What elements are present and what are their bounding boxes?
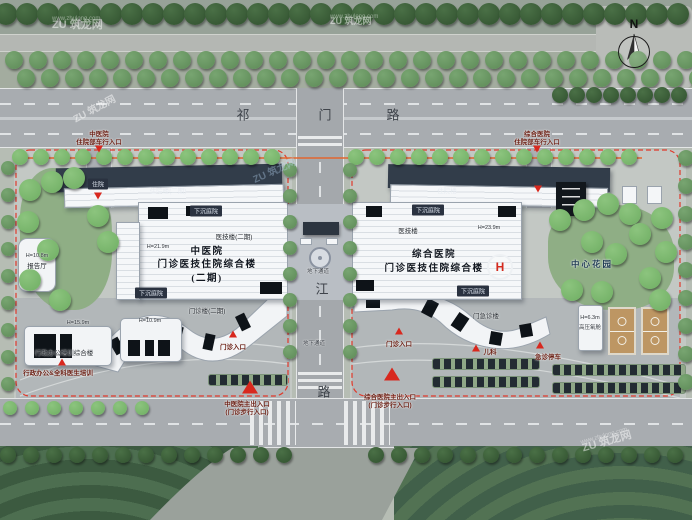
outpatient2-height: H=10.9m xyxy=(139,318,161,324)
right-medtech-label: 医技楼 xyxy=(398,225,418,235)
right-sunken-courtyard-bottom: 下沉庭院 xyxy=(457,286,489,297)
right-outpatient-wing-label: 门急诊楼 xyxy=(473,310,499,320)
road-qimen-char-2: 门 xyxy=(318,105,331,124)
road-qimen-char-1: 祁 xyxy=(236,105,249,124)
right-medtech-height: H=23.9m xyxy=(478,225,500,231)
left-hospital-title-line1: 中医院 xyxy=(190,243,223,257)
admin-building-label: 行政办公培训综合楼 xyxy=(35,347,94,357)
left-inpatient-chip: 住院 xyxy=(88,179,108,190)
right-hospital-title-line1: 综合医院 xyxy=(412,246,456,260)
right-sunken-courtyard-top: 下沉庭院 xyxy=(412,205,444,216)
underpass-label-top: 地下通道 xyxy=(307,267,329,275)
pediatrics-label: 儿科 xyxy=(484,346,497,356)
road-vert-char-1: 江 xyxy=(315,279,328,298)
right-main-entrance-line2: (门诊步行入口) xyxy=(368,399,411,409)
left-sunken-courtyard-bottom: 下沉庭院 xyxy=(135,288,167,299)
report-hall-height: H=10.8m xyxy=(26,253,48,259)
hospital-master-plan: H 祁门路江路地下通道地下通道中医院住院部车行入口综合医院住院部车行入口住院住院… xyxy=(0,0,692,520)
left-medtech-label: 医技楼(二期) xyxy=(216,231,253,241)
left-main-entrance-line2: (门诊步行入口) xyxy=(225,406,268,416)
right-inpatient-drive-line2: 住院部车行入口 xyxy=(514,136,560,146)
oxygen-chamber-label: 高压氧舱 xyxy=(579,323,601,331)
left-outpatient-entrance: 门诊入口 xyxy=(220,341,246,351)
road-qimen-char-3: 路 xyxy=(386,105,399,124)
north-arrow-letter: N xyxy=(630,17,639,31)
road-vert-char-2: 路 xyxy=(317,382,330,401)
report-hall-label: 报告厅 xyxy=(27,260,47,270)
right-inpatient-wing-label: 住院楼 xyxy=(437,185,457,195)
north-arrow-icon xyxy=(618,36,650,68)
left-sunken-courtyard-top: 下沉庭院 xyxy=(190,206,222,217)
underpass-label-bottom: 地下通道 xyxy=(303,339,325,347)
left-hospital-title-line2: 门诊医技住院综合楼 xyxy=(157,256,256,270)
admin-building-height: H=15.9m xyxy=(67,320,89,326)
emergency-parking-label: 急诊停车 xyxy=(535,351,561,361)
left-outpatient-wing-label: 门诊楼(二期) xyxy=(189,305,226,315)
oxygen-chamber-height: H=6.3m xyxy=(580,315,599,321)
admin-building-caption: 行政办公&全科医生培训 xyxy=(23,367,93,377)
right-hospital-title-line2: 门诊医技住院综合楼 xyxy=(384,260,483,274)
right-outpatient-entrance: 门诊入口 xyxy=(386,338,412,348)
left-inpatient-wing-label: 住院楼(二期) xyxy=(150,185,187,195)
central-garden-label: 中心花园 xyxy=(571,258,613,270)
left-medtech-height: H=21.9m xyxy=(147,244,169,250)
left-hospital-title-line3: (二期) xyxy=(191,270,222,284)
left-inpatient-drive-line2: 住院部车行入口 xyxy=(76,136,122,146)
